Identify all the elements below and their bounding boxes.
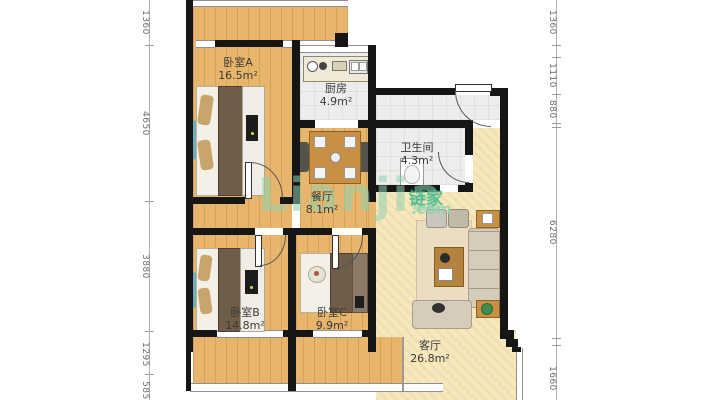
wall-step (506, 339, 518, 347)
dimension-tick (552, 127, 561, 128)
living-armchair (426, 209, 447, 228)
toilet-bowl (404, 165, 420, 184)
bedroom-c-bed-sheet (300, 253, 332, 313)
room-name: 卧室B (210, 306, 280, 319)
bedroom-c-pillow-dot (314, 271, 319, 276)
dimension-tick (552, 45, 561, 46)
dimension-tick (145, 201, 154, 202)
dining-plate (314, 167, 326, 179)
wall (362, 228, 376, 235)
dimension-tick (145, 45, 154, 46)
dimension-tick (552, 338, 561, 339)
room-label-kitchen: 厨房 4.9m² (303, 82, 369, 109)
room-area: 16.5m² (198, 69, 278, 82)
wall (376, 88, 455, 95)
living-sofa (468, 228, 500, 308)
room-name: 卧室C (297, 306, 367, 319)
dining-plate (344, 167, 356, 179)
dining-plate (314, 136, 326, 148)
room-name: 卧室A (198, 56, 278, 69)
room-area: 26.8m² (395, 352, 465, 365)
room-name: 餐厅 (292, 190, 352, 203)
wall (500, 95, 508, 330)
kitchen-window (300, 45, 368, 53)
wall (186, 352, 191, 391)
room-area: 9.9m² (297, 319, 367, 332)
balcony-window (190, 383, 443, 392)
dim-label-right-880: 880 (547, 95, 557, 123)
wall (288, 235, 296, 391)
wall (283, 228, 332, 235)
room-label-bedroom-c: 卧室C 9.9m² (297, 306, 367, 333)
dim-label-left-4650: 4650 (140, 103, 150, 143)
kitchen-sink-basin (351, 62, 359, 71)
room-label-living: 客厅 26.8m² (395, 339, 465, 366)
room-area: 4.9m² (303, 95, 369, 108)
wall-step (500, 330, 514, 339)
wall (215, 40, 283, 47)
bedroom-a-blanket (218, 86, 244, 196)
dining-plate (344, 136, 356, 148)
dim-label-left-1295: 1295 (140, 335, 150, 373)
dimension-tick (552, 123, 561, 124)
bedroom-b-tv (245, 270, 258, 294)
room-name: 卫生间 (382, 141, 452, 154)
living-bench-item (432, 303, 445, 313)
room-name: 厨房 (303, 82, 369, 95)
dimension-tick (552, 345, 561, 346)
wall (186, 228, 255, 235)
dim-label-right-6280: 6280 (547, 212, 557, 252)
floorplan: 卧室A 16.5m² 厨房 4.9m² 卫生间 4.3m² 餐厅 8.1m² 卧… (0, 0, 710, 400)
room-label-bathroom: 卫生间 4.3m² (382, 141, 452, 168)
living-bay-window (516, 348, 523, 400)
kitchen-pot-icon (319, 62, 327, 70)
dim-label-left-1360: 1360 (140, 2, 150, 42)
bedroom-a-window-left (196, 40, 215, 48)
dimension-tick (145, 374, 154, 375)
hall-passage-floor (368, 202, 376, 228)
room-label-bedroom-b: 卧室B 14.8m² (210, 306, 280, 333)
living-side-table-item (482, 213, 493, 224)
wall (458, 185, 473, 192)
dim-label-left-3880: 3880 (140, 246, 150, 286)
wall (335, 33, 348, 47)
wall (186, 0, 193, 352)
room-area: 4.3m² (382, 154, 452, 167)
dim-label-right-1110: 1110 (547, 58, 557, 92)
bedroom-a-tv-led (251, 132, 254, 135)
wall-step (512, 347, 521, 352)
living-plant-icon (481, 303, 493, 315)
bay-window-floor-bedroom-a (193, 4, 348, 40)
dim-label-left-585: 585 (140, 380, 150, 400)
kitchen-stove-icon (332, 61, 347, 71)
wall (465, 128, 473, 155)
living-coffee-table-tray (438, 268, 453, 281)
dim-label-right-1360: 1360 (547, 2, 557, 42)
room-area: 14.8m² (210, 319, 280, 332)
wall (193, 197, 245, 204)
dining-bowl (330, 152, 341, 163)
dim-label-right-1660: 1660 (547, 356, 557, 400)
kitchen-sink-basin (359, 62, 367, 71)
bedroom-b-tv-led (250, 286, 253, 289)
living-coffee-table (434, 247, 464, 287)
wall (292, 120, 315, 128)
corridor-floor (473, 128, 500, 192)
wall (358, 120, 473, 128)
bedroom-a-tv (246, 115, 258, 141)
bay-window-top (193, 0, 348, 7)
dimension-tick (145, 331, 154, 332)
room-area: 8.1m² (292, 203, 352, 216)
room-label-bedroom-a: 卧室A 16.5m² (198, 56, 278, 83)
living-coffee-table-item (440, 253, 450, 263)
kitchen-kettle-icon (307, 61, 318, 72)
wall (368, 185, 440, 192)
living-armchair (448, 209, 469, 228)
room-name: 客厅 (395, 339, 465, 352)
room-label-dining: 餐厅 8.1m² (292, 190, 352, 217)
